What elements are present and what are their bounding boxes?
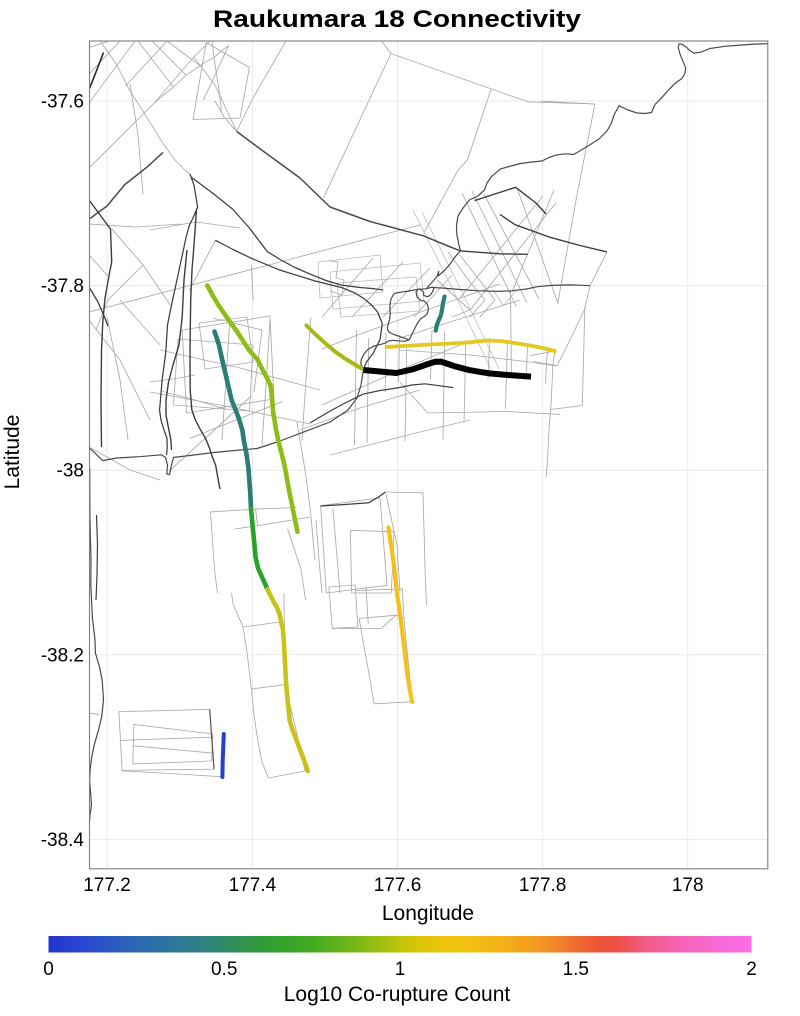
svg-text:0: 0 xyxy=(43,959,54,980)
svg-text:177.8: 177.8 xyxy=(519,875,567,896)
svg-text:Log10 Co-rupture Count: Log10 Co-rupture Count xyxy=(284,983,511,1006)
svg-text:2: 2 xyxy=(746,959,757,980)
svg-text:178: 178 xyxy=(672,875,704,896)
svg-text:177.2: 177.2 xyxy=(83,875,131,896)
svg-text:Raukumara 18 Connectivity: Raukumara 18 Connectivity xyxy=(213,6,582,33)
svg-text:0.5: 0.5 xyxy=(211,959,237,980)
svg-text:-38.2: -38.2 xyxy=(41,645,84,666)
svg-text:177.6: 177.6 xyxy=(374,875,422,896)
svg-text:177.4: 177.4 xyxy=(229,875,277,896)
svg-text:-38.4: -38.4 xyxy=(41,830,85,851)
svg-text:1: 1 xyxy=(395,959,406,980)
svg-text:Longitude: Longitude xyxy=(382,902,474,925)
svg-text:-37.8: -37.8 xyxy=(41,276,84,297)
svg-text:-38: -38 xyxy=(57,461,84,482)
svg-text:1.5: 1.5 xyxy=(563,959,589,980)
svg-text:-37.6: -37.6 xyxy=(41,92,84,113)
svg-text:Latitude: Latitude xyxy=(1,415,24,490)
